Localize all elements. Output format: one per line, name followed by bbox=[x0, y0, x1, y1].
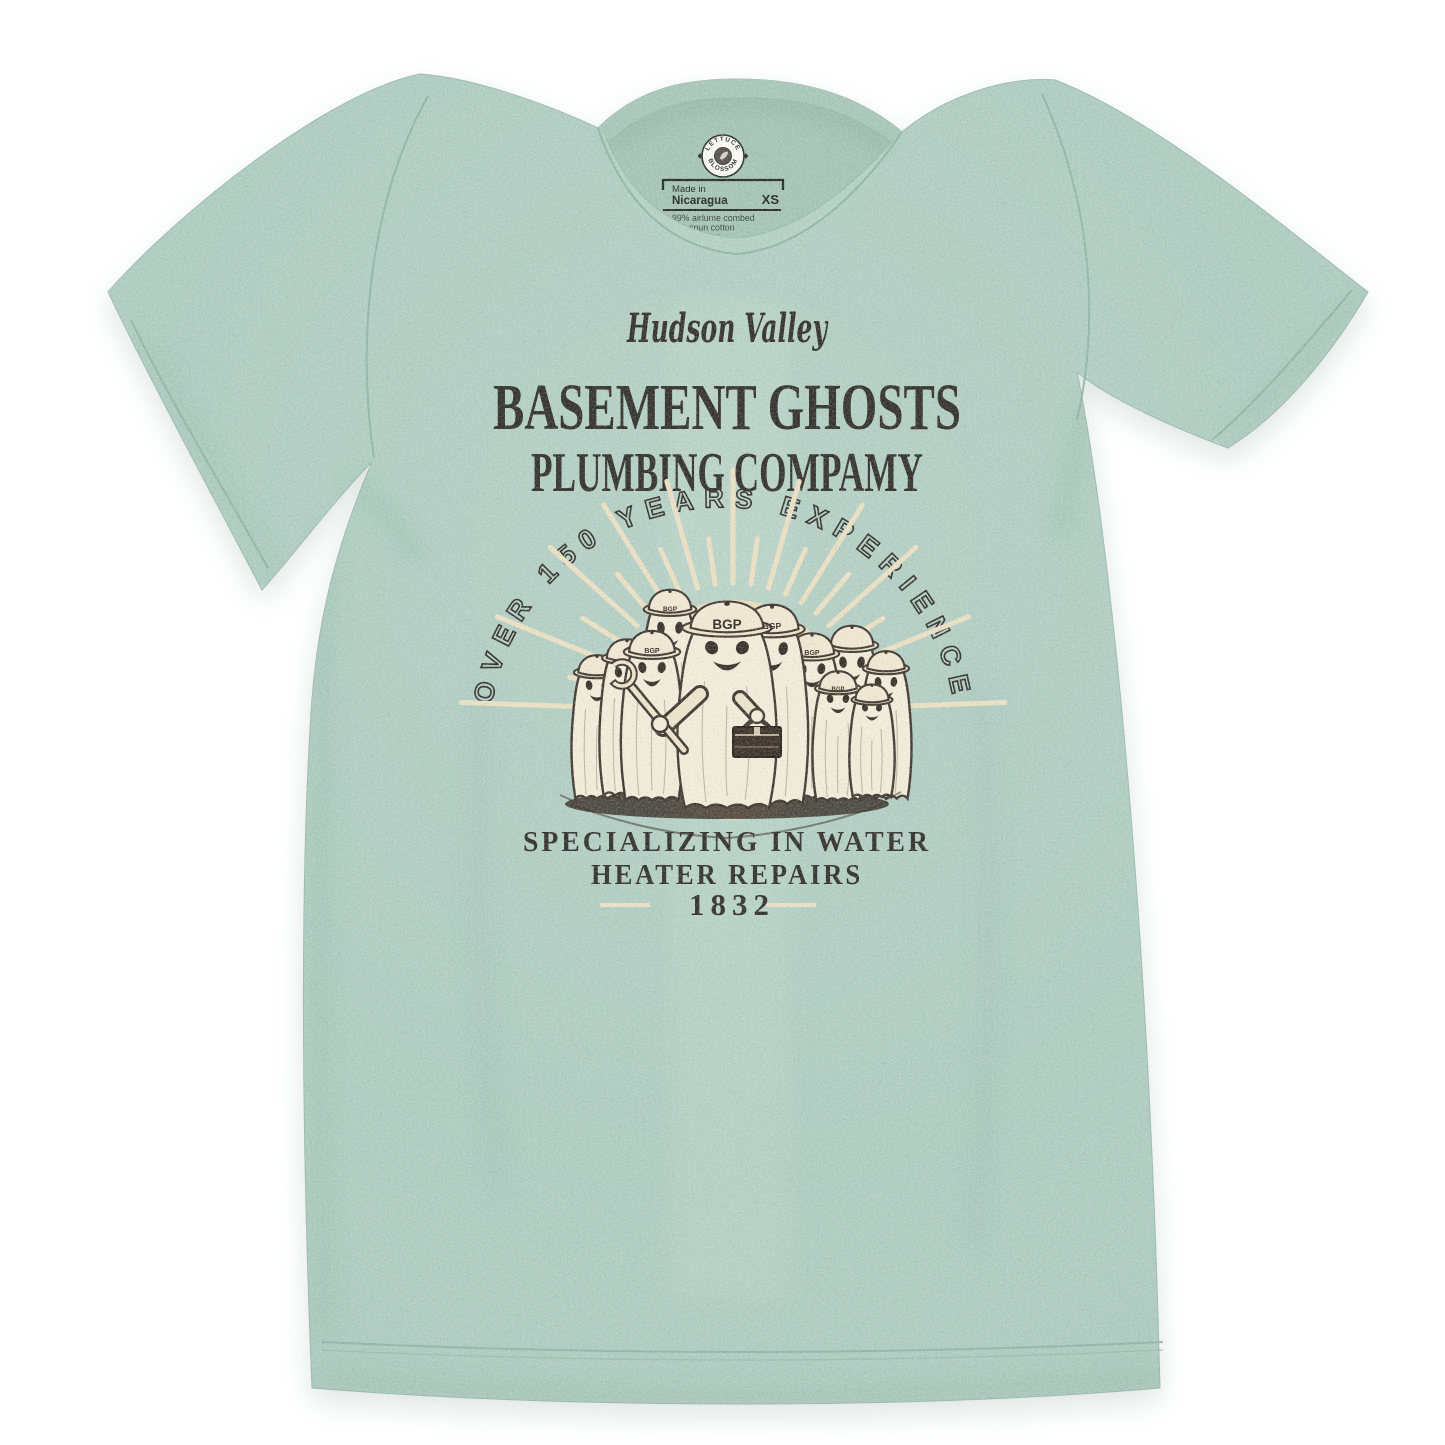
tshirt-mockup: LETTUCE BLOSSOM Made in Nicaragua XS 99%… bbox=[0, 0, 1445, 1445]
product-photo: LETTUCE BLOSSOM Made in Nicaragua XS 99%… bbox=[0, 0, 1445, 1445]
